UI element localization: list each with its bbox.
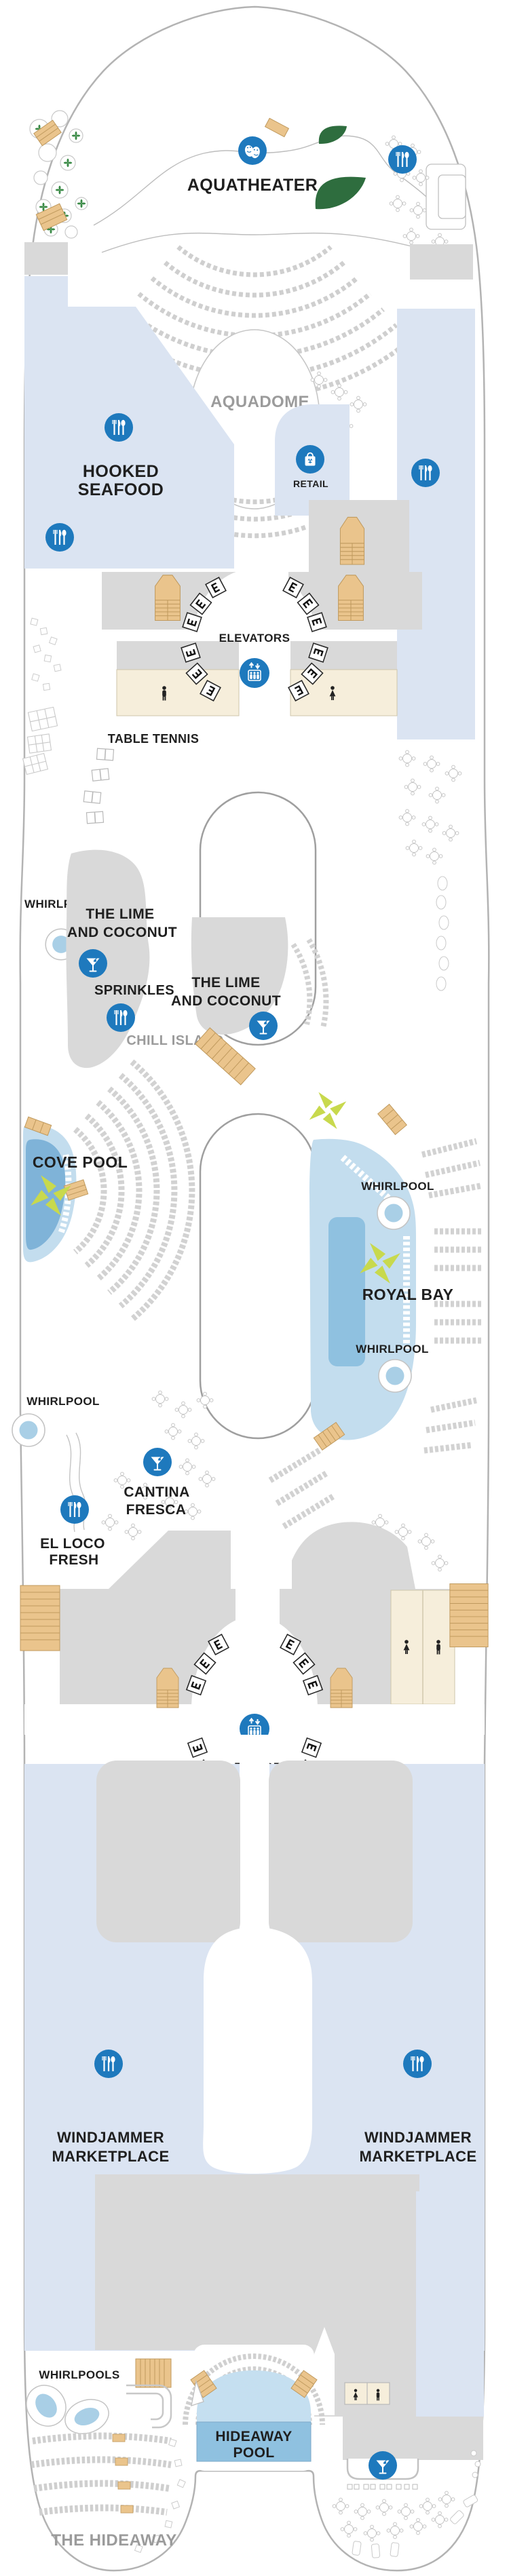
whirlpool xyxy=(12,1414,45,1446)
stairs xyxy=(136,2359,171,2387)
open-well-aft xyxy=(200,1114,316,1438)
stairs xyxy=(331,1668,352,1708)
lime-coconut-port-label-line1: THE LIME xyxy=(86,906,154,922)
bow-right-structures xyxy=(426,164,466,229)
bar-icon xyxy=(249,1012,278,1040)
windjammer-starboard-label-line2: MARKETPLACE xyxy=(359,2148,476,2165)
royal-bay-label: ROYAL BAY xyxy=(362,1286,453,1303)
hooked-seafood-label-line2: SEAFOOD xyxy=(78,480,164,499)
aquatheater-label: AQUATHEATER xyxy=(187,176,318,195)
whirlpool-royal-bay-aft-label: WHIRLPOOL xyxy=(356,1343,428,1356)
hooked-seafood-label-line1: HOOKED xyxy=(83,462,159,481)
table-tennis-label: TABLE TENNIS xyxy=(108,732,199,746)
lobby-fwd-wall-left xyxy=(117,641,239,670)
stairs xyxy=(20,1585,60,1651)
elevator-icon xyxy=(240,658,269,688)
whirlpool xyxy=(379,1360,411,1392)
lobby-aft-corridor-south xyxy=(240,1735,269,1931)
hideaway-pool-label-line1: HIDEAWAY xyxy=(215,2429,292,2444)
starboard-structure-block xyxy=(410,244,473,280)
el-loco-fresh-label-line2: FRESH xyxy=(49,1552,98,1568)
stairs xyxy=(450,1583,488,1647)
stern-structure-band xyxy=(95,2174,419,2300)
dining-icon xyxy=(107,1003,135,1032)
retail-bag-icon xyxy=(296,445,324,474)
cantina-fresca-label-line2: FRESCA xyxy=(126,1502,187,1518)
bar-icon xyxy=(369,2451,397,2480)
stern-starboard-blue-column xyxy=(416,2191,484,2417)
lime-coconut-starboard-label-line1: THE LIME xyxy=(191,975,260,991)
lime-coconut-port-label-line2: AND COCONUT xyxy=(67,925,177,940)
windjammer-port-label-line1: WINDJAMMER xyxy=(57,2129,164,2146)
el-loco-fresh-label-line1: EL LOCO xyxy=(40,1536,105,1552)
lobby-fwd-wall-right xyxy=(290,641,397,670)
sprinkles-label: SPRINKLES xyxy=(94,983,174,998)
whirlpool-royal-bay-forward-label: WHIRLPOOL xyxy=(361,1180,434,1193)
the-hideaway-label: THE HIDEAWAY xyxy=(51,2531,176,2550)
dining-icon xyxy=(388,145,417,174)
stairs xyxy=(155,575,181,621)
windjammer-structure-starboard xyxy=(269,1761,413,1942)
restroom-stern xyxy=(345,2383,390,2404)
retail-label: RETAIL xyxy=(293,478,328,489)
elevators-forward-label: ELEVATORS xyxy=(219,632,290,645)
bar-icon xyxy=(79,949,107,978)
whirlpools-aft-label: WHIRLPOOLS xyxy=(39,2368,119,2381)
bar-stools xyxy=(347,2484,417,2489)
dining-icon xyxy=(45,523,74,552)
restroom-left xyxy=(117,670,239,716)
cove-pool-label: COVE POOL xyxy=(33,1153,128,1171)
dining-icon xyxy=(105,413,133,442)
dining-icon xyxy=(60,1495,89,1524)
whirlpool-port-mid-label: WHIRLPOOL xyxy=(26,1395,99,1408)
stairs xyxy=(339,575,364,621)
bar-icon xyxy=(143,1448,172,1476)
lime-coconut-starboard-label-line2: AND COCONUT xyxy=(171,993,281,1009)
whirlpool xyxy=(377,1197,410,1229)
hideaway-pool-label-line2: POOL xyxy=(233,2445,274,2461)
dining-icon xyxy=(403,2050,432,2078)
stern-structure-bar-back xyxy=(343,2415,483,2460)
stairs xyxy=(157,1668,178,1708)
port-structure-block xyxy=(24,242,68,275)
windjammer-structure-port xyxy=(96,1761,240,1942)
dining-icon xyxy=(94,2050,123,2078)
aqua-show-icon xyxy=(238,136,267,165)
windjammer-port-label-line2: MARKETPLACE xyxy=(52,2148,169,2165)
dining-icon xyxy=(411,459,440,487)
stairs xyxy=(340,517,364,564)
windjammer-center-aisle xyxy=(203,1927,312,2174)
stern-structure-center xyxy=(95,2300,305,2350)
windjammer-starboard-label-line1: WINDJAMMER xyxy=(364,2129,472,2146)
ship-deck-plan: AQUATHEATER AQUADOME HOOKED SEAFOOD RETA… xyxy=(0,0,509,2576)
deck-plan-page: AQUATHEATER AQUADOME HOOKED SEAFOOD RETA… xyxy=(0,0,509,2576)
cantina-fresca-label-line1: CANTINA xyxy=(124,1484,189,1500)
